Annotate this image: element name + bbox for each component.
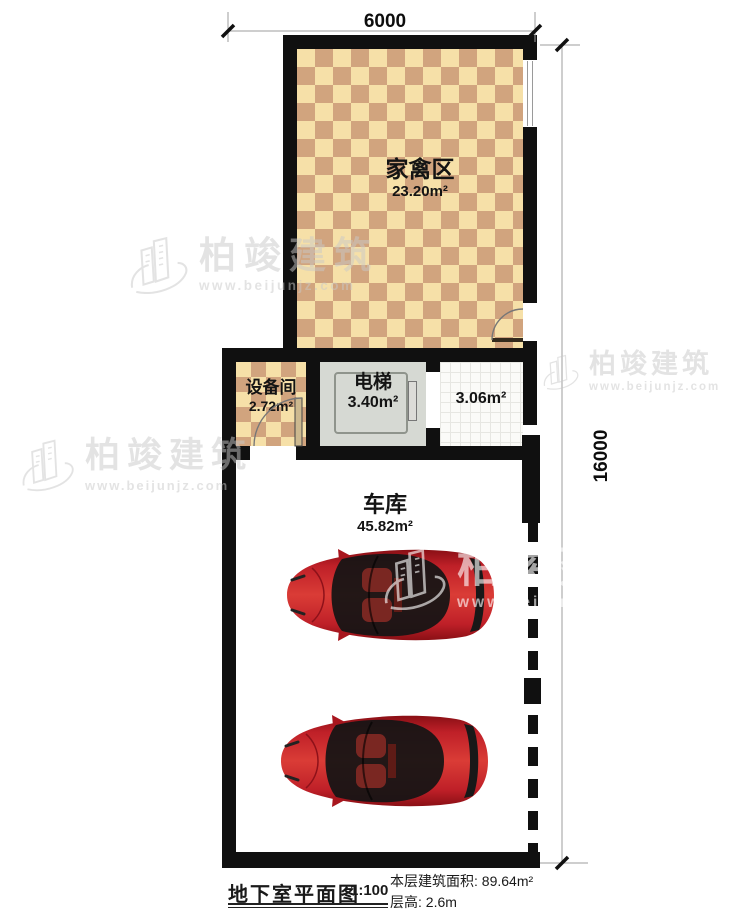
room-name: 车库: [300, 492, 470, 518]
car-top-view-2: [281, 715, 488, 807]
plan-scale: 1:100: [350, 882, 388, 899]
wall-segment: [523, 35, 537, 60]
watermark: 柏竣建筑 www.beijunjz.com: [542, 350, 720, 393]
room-name: 家禽区: [330, 156, 510, 183]
wall-segment: [296, 446, 537, 460]
dimension-width-label: 6000: [325, 11, 445, 33]
floor-height-note: 层高: 2.6m: [390, 892, 457, 912]
floor-area-note: 本层建筑面积: 89.64m²: [390, 871, 533, 891]
watermark-brand: 柏竣建筑: [589, 350, 720, 378]
wall-notch: [523, 425, 537, 435]
watermark-brand: 柏竣建筑: [457, 546, 661, 591]
door-opening: [250, 446, 296, 460]
wall-segment: [222, 348, 537, 362]
wall-segment: [222, 348, 236, 868]
room-label-lobby: 3.06m²: [436, 390, 526, 409]
title-underline: [228, 907, 388, 908]
room-label-equipment: 设备间 2.72m²: [224, 378, 318, 415]
watermark-logo-icon: [20, 438, 76, 492]
dimension-height-label: 16000: [591, 406, 613, 506]
wall-segment: [222, 852, 540, 868]
room-area: 2.72m²: [224, 398, 318, 415]
watermark: 柏竣建筑 www.beijunjz.com: [382, 546, 661, 612]
dimension-height: [540, 39, 588, 869]
wall-segment: [426, 348, 440, 372]
watermark-logo-icon: [382, 548, 448, 610]
room-area: 23.20m²: [330, 183, 510, 201]
wall-segment: [283, 35, 297, 352]
window-opening: [523, 60, 537, 127]
wall-segment: [523, 348, 537, 425]
wall-segment: [523, 127, 537, 303]
title-underline: [228, 903, 388, 905]
room-area: 3.40m²: [320, 394, 426, 413]
room-name: 电梯: [320, 372, 426, 394]
floor-plan: 家禽区 23.20m² 设备间 2.72m² 电梯 3.40m² 3.06m² …: [0, 0, 750, 918]
watermark-url: www.beijunjz.com: [589, 381, 720, 393]
room-area: 45.82m²: [300, 518, 470, 536]
room-name: 设备间: [224, 378, 318, 398]
room-label-garage: 车库 45.82m²: [300, 492, 470, 536]
room-label-elevator: 电梯 3.40m²: [320, 372, 426, 413]
car-top-view-1: [287, 549, 494, 641]
door-opening: [523, 303, 537, 341]
watermark-url: www.beijunjz.com: [457, 594, 661, 612]
room-area: 3.06m²: [436, 390, 526, 409]
watermark-logo-icon: [128, 236, 190, 294]
watermark: 柏竣建筑 www.beijunjz.com: [20, 438, 253, 493]
watermark-logo-icon: [542, 353, 580, 391]
wall-pier: [524, 678, 541, 704]
room-label-poultry: 家禽区 23.20m²: [330, 156, 510, 201]
wall-segment: [283, 35, 537, 49]
